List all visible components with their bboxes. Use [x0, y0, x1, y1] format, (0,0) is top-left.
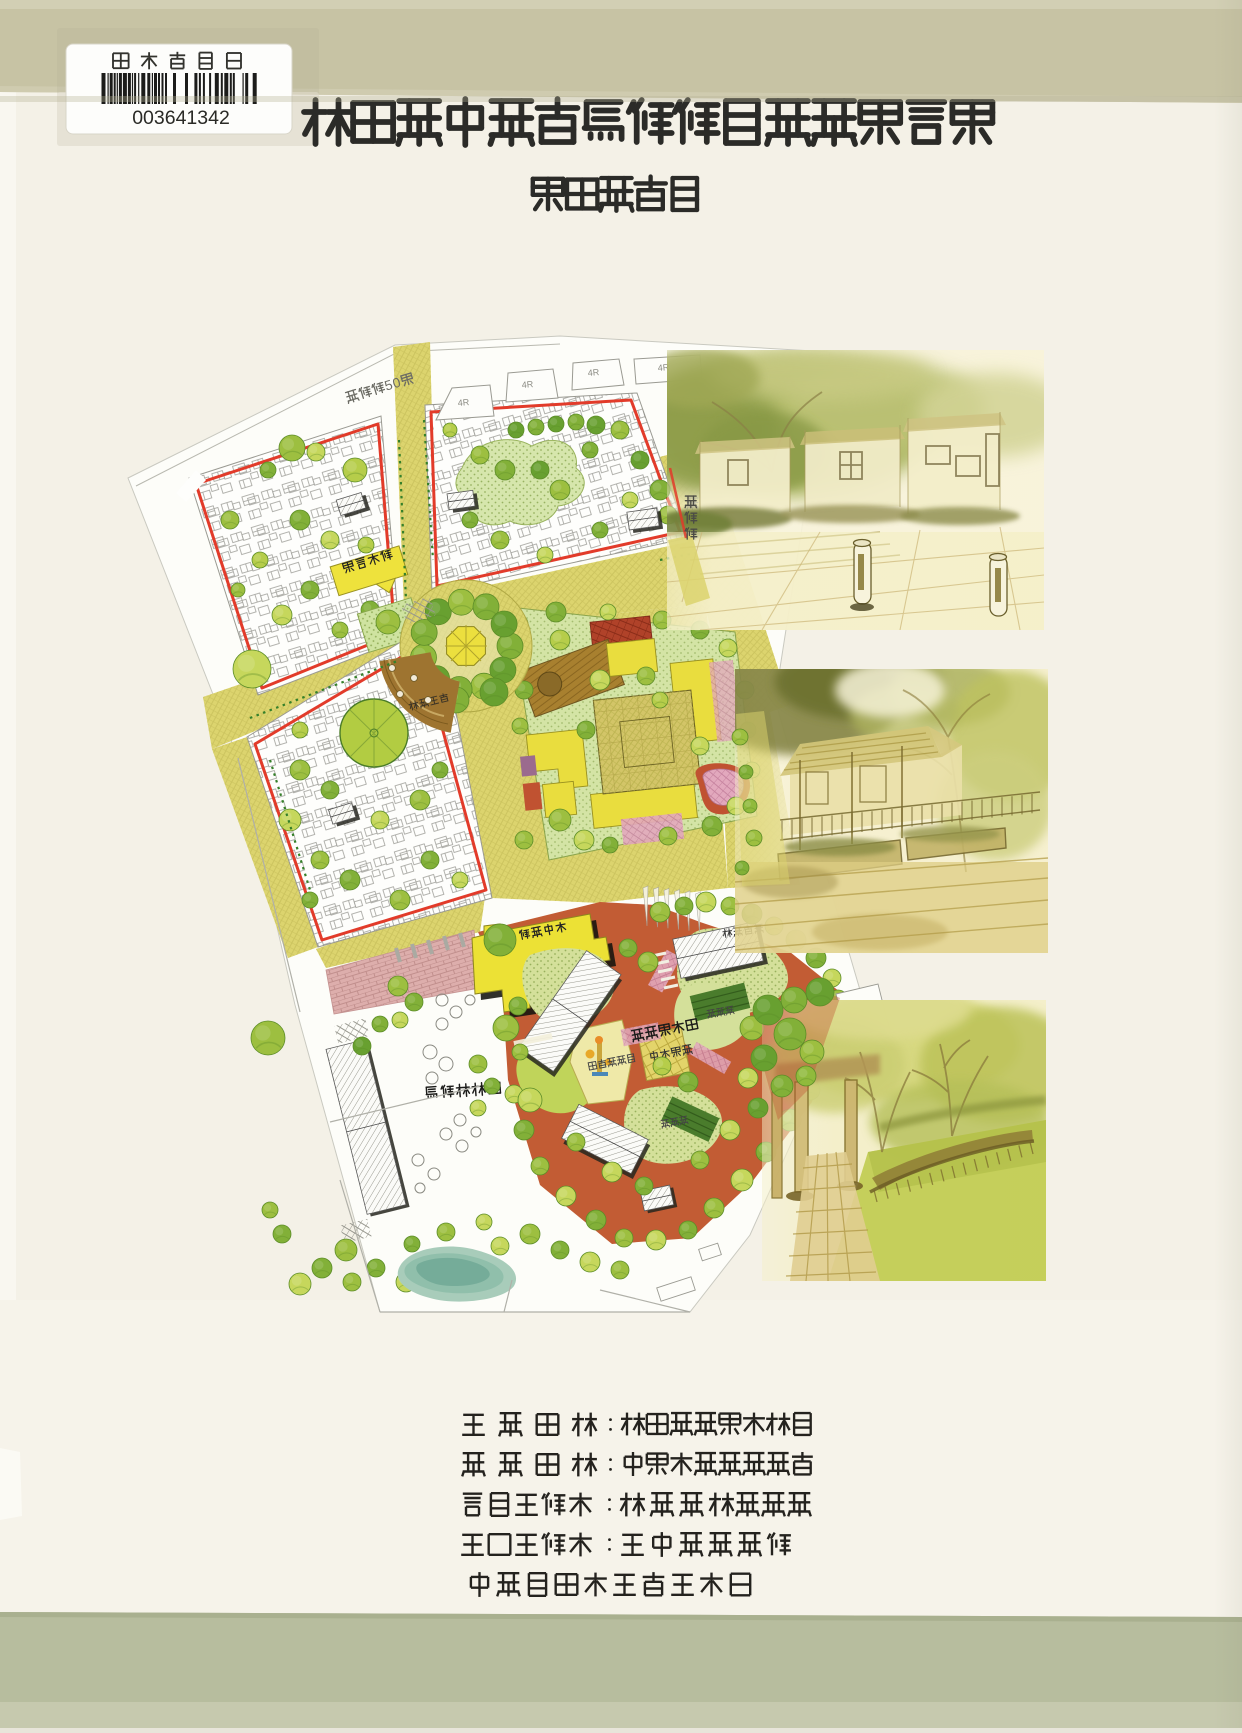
svg-text:003641342: 003641342 [132, 107, 230, 129]
svg-text:4R: 4R [587, 367, 600, 378]
svg-text:4R: 4R [521, 379, 534, 390]
svg-text:4R: 4R [457, 397, 470, 408]
